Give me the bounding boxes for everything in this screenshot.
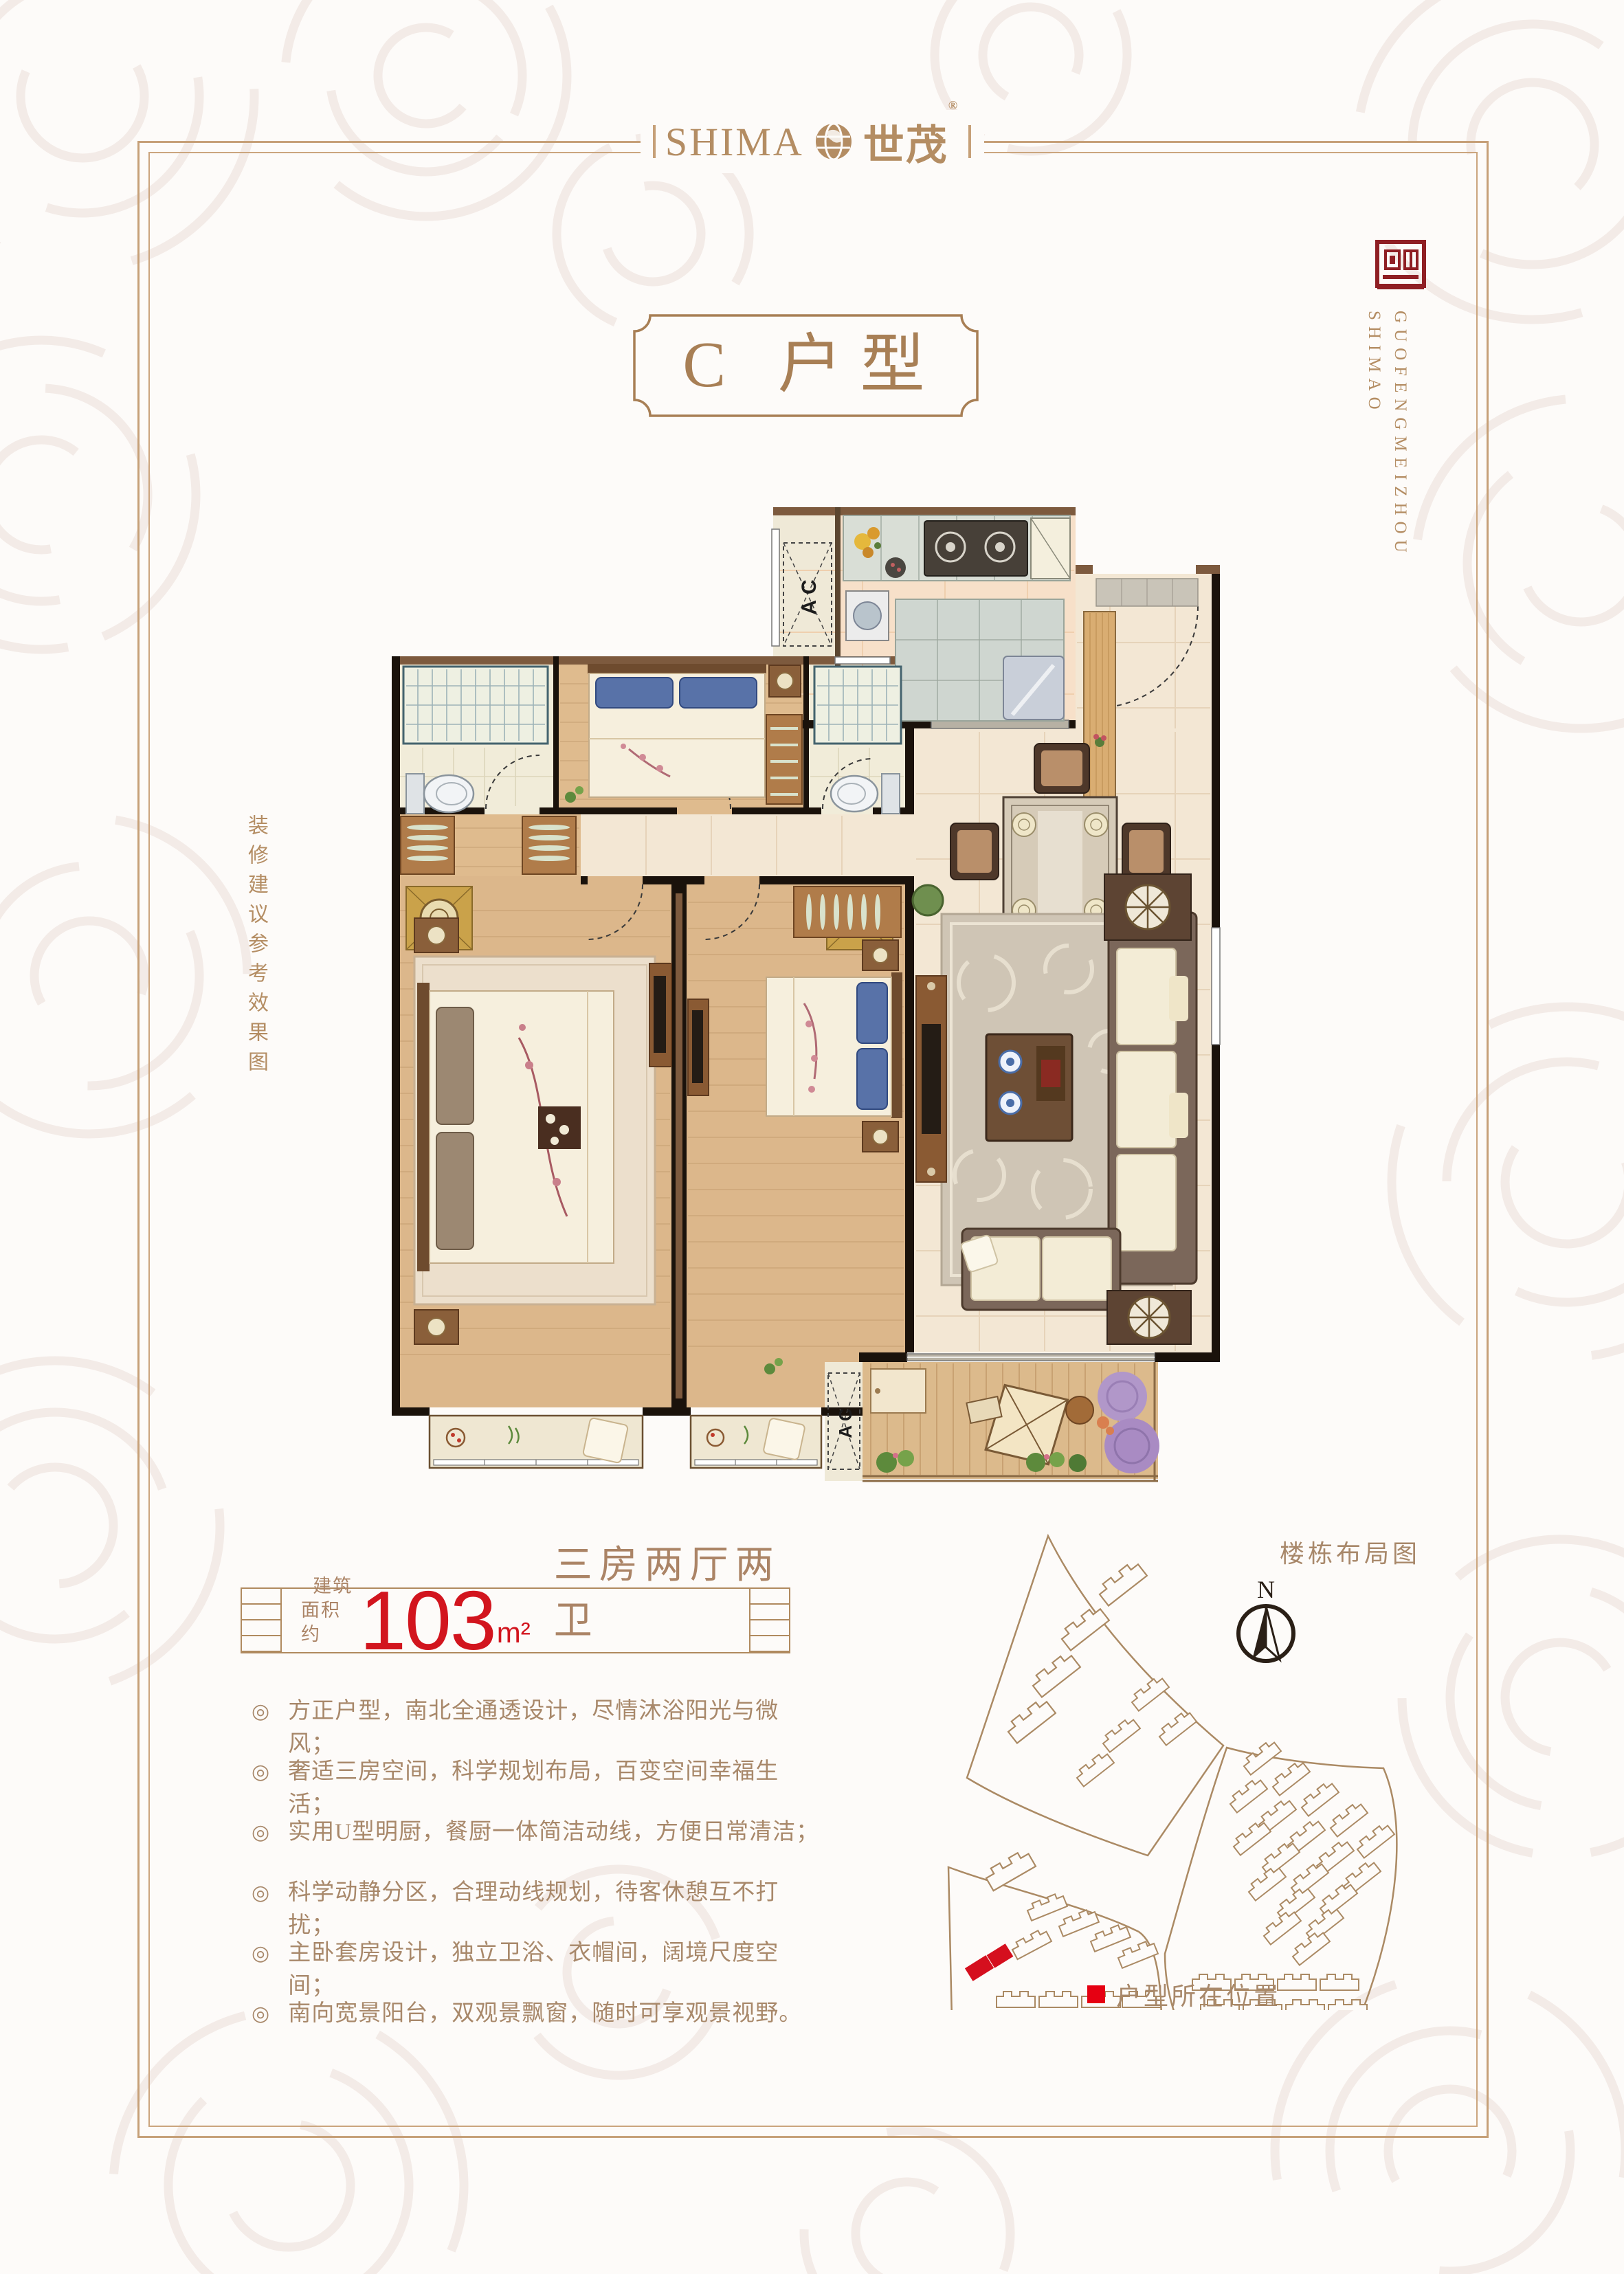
frame-end-tick xyxy=(968,125,971,158)
feature-item: ◎实用U型明厨，餐厨一体简洁动线，方便日常清洁； xyxy=(252,1813,822,1873)
stove xyxy=(924,521,1027,576)
seal-icon xyxy=(1375,239,1427,291)
area-info-box: 建筑 面积约 103 m² 三房两厅两卫 xyxy=(241,1587,790,1653)
bullet-icon: ◎ xyxy=(252,1760,270,1784)
feature-item: ◎奢适三房空间，科学规划布局，百变空间幸福生活； xyxy=(252,1752,822,1813)
side-brand-line1: SHIMAO xyxy=(1364,311,1383,559)
toilet xyxy=(406,774,474,814)
bullet-icon: ◎ xyxy=(252,1820,270,1844)
side-table xyxy=(1107,1291,1191,1344)
feature-item: ◎方正户型，南北全通透设计，尽情沐浴阳光与微风； xyxy=(252,1692,822,1752)
bullet-icon: ◎ xyxy=(252,1699,270,1724)
box-end-ornament xyxy=(242,1589,282,1652)
unit-title-box: C 户型 xyxy=(632,313,979,418)
area-value: 103 xyxy=(359,1586,496,1655)
side-brand-text: SHIMAO GUOFENGMEIZHOU xyxy=(1364,311,1410,559)
feature-text: 实用U型明厨，餐厨一体简洁动线，方便日常清洁； xyxy=(288,1813,819,1846)
compass-icon: N xyxy=(1238,1576,1293,1661)
site-plan: N xyxy=(931,1529,1474,2010)
bed-tray xyxy=(538,1106,581,1149)
feature-text: 方正户型，南北全通透设计，尽情沐浴阳光与微风； xyxy=(288,1692,822,1758)
bullet-icon: ◎ xyxy=(252,1941,270,1965)
globe-icon xyxy=(814,122,854,161)
living-room xyxy=(913,874,1197,1344)
side-table xyxy=(1104,874,1191,940)
frame-end-tick xyxy=(653,125,656,158)
bullet-icon: ◎ xyxy=(252,2002,270,2026)
balcony-table xyxy=(1066,1396,1093,1424)
feature-list: ◎方正户型，南北全通透设计，尽情沐浴阳光与微风； ◎奢适三房空间，科学规划布局，… xyxy=(252,1692,822,2055)
brand-logo: SHIMA 世茂® xyxy=(641,110,984,173)
bay-window xyxy=(691,1416,821,1468)
floor-plan: AC AC xyxy=(381,502,1227,1491)
logo-cn-glyphs: 世茂 xyxy=(863,123,948,168)
ac-label: AC xyxy=(798,574,821,614)
siteplan-title: 楼栋布局图 xyxy=(1280,1534,1421,1570)
bay-window xyxy=(430,1416,643,1468)
logo-cn-text: 世茂® xyxy=(863,112,959,172)
ac-label: AC xyxy=(835,1404,856,1438)
area-unit: m² xyxy=(497,1616,531,1655)
legend: 户型所在位置 xyxy=(1087,1976,1281,2012)
unit-location-marker xyxy=(965,1943,1013,1981)
feature-item: ◎科学动静分区，合理动线规划，待客休憩互不打扰； xyxy=(252,1873,822,1934)
toilet xyxy=(831,774,900,814)
area-prefix-line2: 面积约 xyxy=(301,1598,353,1647)
page-title: C 户型 xyxy=(632,313,979,418)
compass-north-label: N xyxy=(1257,1576,1275,1603)
room-layout-text: 三房两厅两卫 xyxy=(554,1534,789,1655)
page: SHIMA 世茂® SHIMAO GUOFENGMEIZHOU 装修建议参考效果… xyxy=(0,0,1624,2274)
tv xyxy=(922,1024,941,1134)
logo-latin-text: SHIMA xyxy=(665,119,804,165)
building-footprints xyxy=(983,1559,1394,2010)
master-bedroom xyxy=(414,918,671,1344)
feature-item: ◎南向宽景阳台，双观景飘窗，随时可享观景视野。 xyxy=(252,1994,822,2055)
area-prefix: 建筑 面积约 xyxy=(301,1574,353,1655)
area-prefix-line1: 建筑 xyxy=(313,1574,353,1598)
feature-text: 主卧套房设计，独立卫浴、衣帽间，阔境尺度空间； xyxy=(288,1934,822,2000)
feature-text: 科学动静分区，合理动线规划，待客休憩互不打扰； xyxy=(288,1873,822,1939)
render-disclaimer-text: 装修建议参考效果图 xyxy=(241,814,271,1080)
plant xyxy=(565,792,576,803)
parcel-outlines xyxy=(948,1536,1397,2010)
legend-text: 户型所在位置 xyxy=(1116,1976,1281,2012)
registered-mark: ® xyxy=(948,98,959,112)
bullet-icon: ◎ xyxy=(252,1881,270,1905)
legend-swatch xyxy=(1087,1985,1105,2003)
plant xyxy=(913,885,943,915)
feature-text: 奢适三房空间，科学规划布局，百变空间幸福生活； xyxy=(288,1752,822,1818)
feature-text: 南向宽景阳台，双观景飘窗，随时可享观景视野。 xyxy=(288,1994,802,2027)
feature-item: ◎主卧套房设计，独立卫浴、衣帽间，阔境尺度空间； xyxy=(252,1934,822,1994)
side-brand-line2: GUOFENGMEIZHOU xyxy=(1390,311,1410,559)
plant xyxy=(764,1363,775,1374)
